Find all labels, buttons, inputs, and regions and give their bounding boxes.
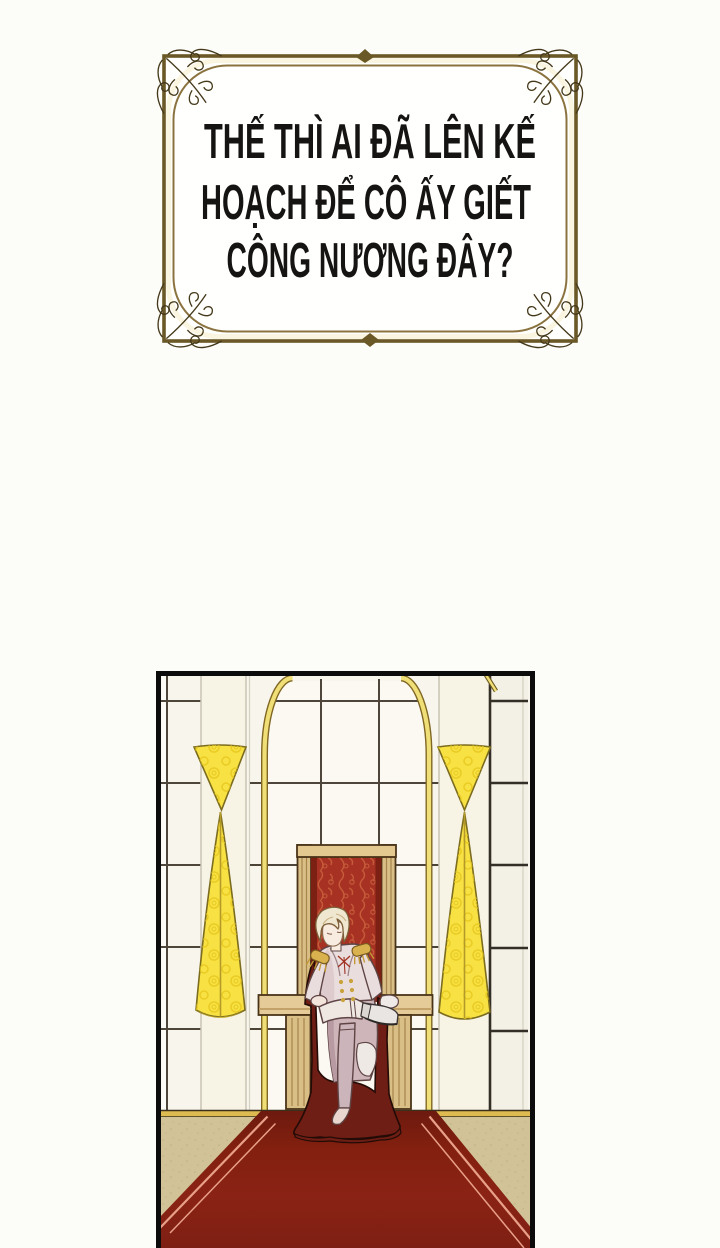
svg-text:CÔNG NƯƠNG ĐÂY?: CÔNG NƯƠNG ĐÂY? [227, 233, 514, 288]
svg-text:HOẠCH ĐỂ CÔ ẤY GIẾT: HOẠCH ĐỂ CÔ ẤY GIẾT [201, 175, 531, 230]
svg-text:THẾ THÌ AI ĐÃ LÊN KẾ: THẾ THÌ AI ĐÃ LÊN KẾ [204, 114, 536, 169]
